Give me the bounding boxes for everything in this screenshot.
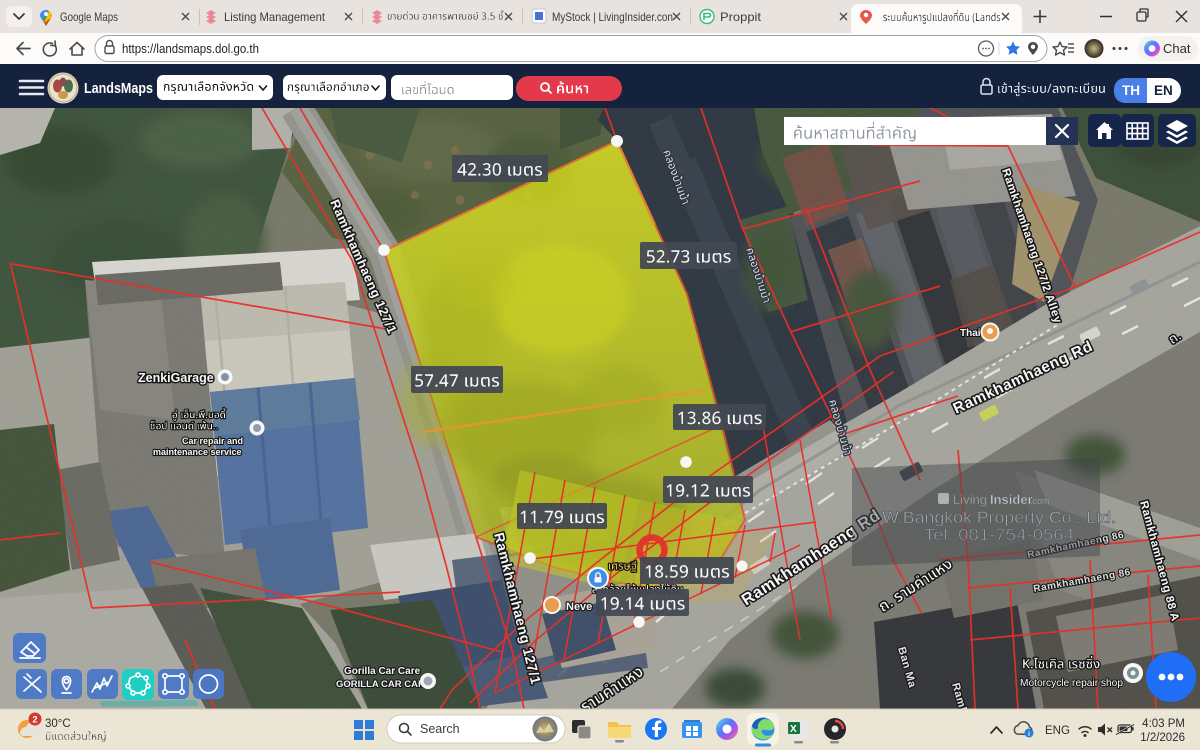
svg-text:TH: TH [1122,83,1140,98]
svg-text:EN: EN [1154,83,1173,98]
svg-text:Chat: Chat [1163,41,1191,56]
svg-text:2: 2 [32,715,37,725]
svg-text:Listing Management: Listing Management [224,10,326,24]
svg-text:Proppit: Proppit [720,10,762,24]
svg-text:4:03 PM: 4:03 PM [1142,718,1185,730]
svg-text:Search: Search [420,722,460,736]
svg-text:X: X [790,724,797,735]
svg-text:30°C: 30°C [45,718,71,730]
svg-text:LandsMaps: LandsMaps [84,81,153,97]
svg-text:i: i [1028,731,1030,738]
svg-text:ENG: ENG [1045,725,1070,737]
svg-text:https://landsmaps.dol.go.th: https://landsmaps.dol.go.th [122,41,259,56]
svg-text:1/2/2026: 1/2/2026 [1140,732,1185,744]
svg-text:MyStock | LivingInsider.con: MyStock | LivingInsider.con [552,10,673,24]
svg-text:Google Maps: Google Maps [60,10,118,24]
